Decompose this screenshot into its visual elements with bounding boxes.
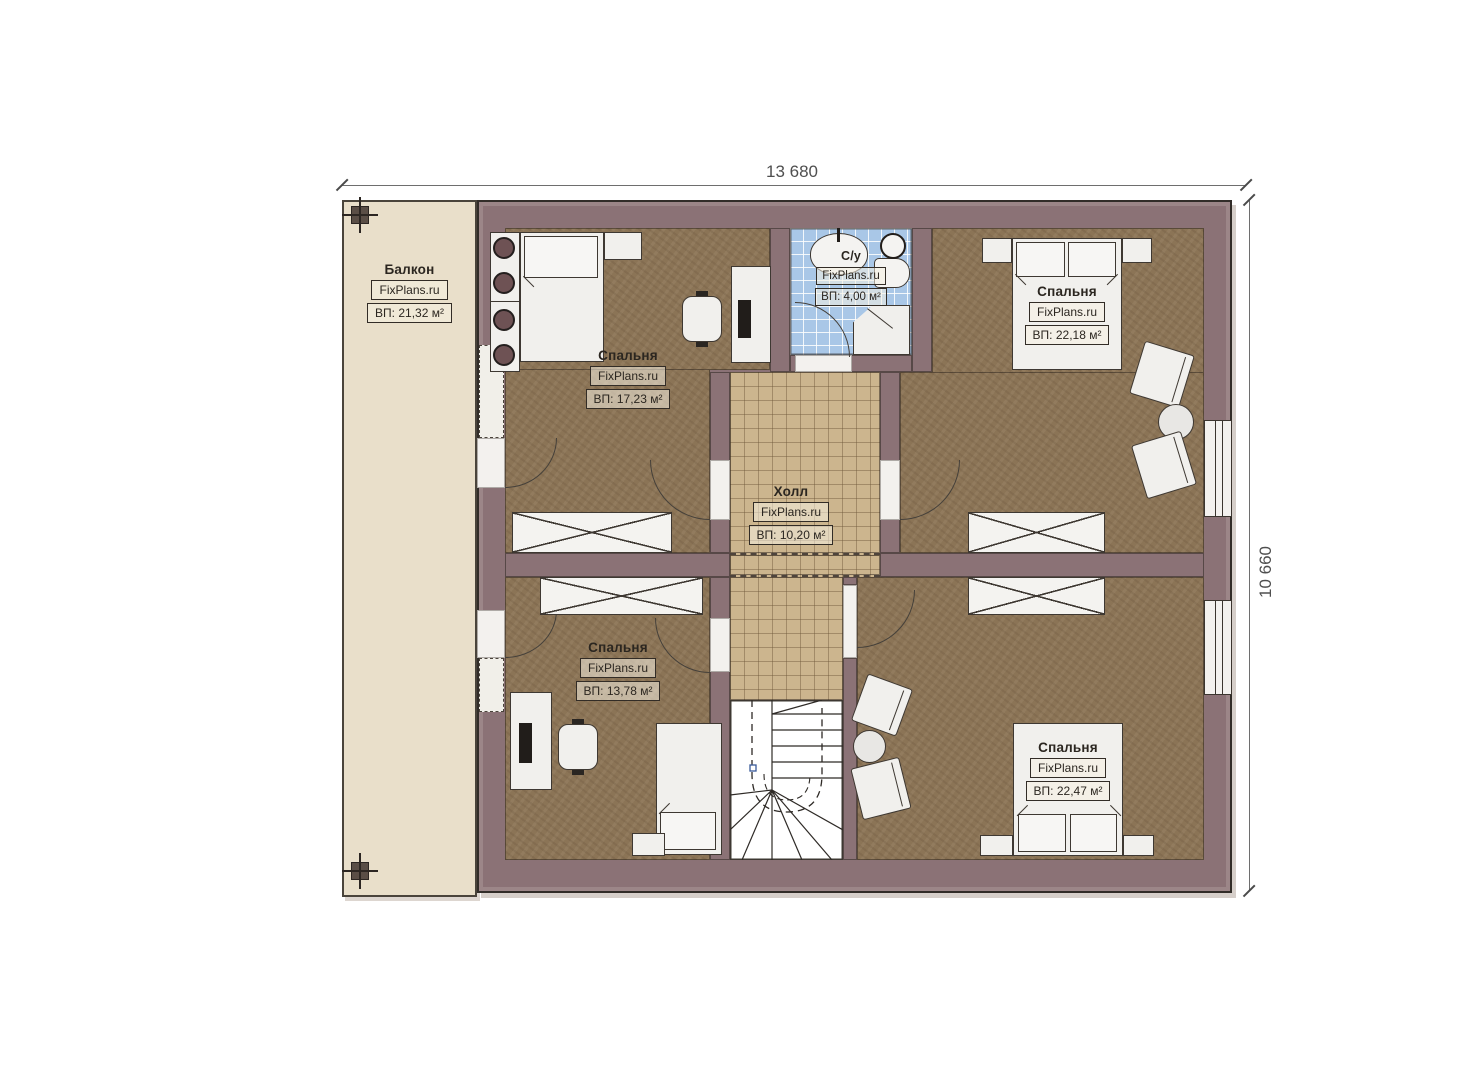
brand-box: FixPlans.ru <box>1030 758 1106 778</box>
area-box: ВП: 22,18 м² <box>1025 325 1110 345</box>
room-label-bedroom-bottom-right: Спальня FixPlans.ru ВП: 22,47 м² <box>1007 740 1129 801</box>
door-opening <box>795 355 852 372</box>
room-name: Спальня <box>568 348 688 363</box>
room-label-bedroom-bottom-left: Спальня FixPlans.ru ВП: 13,78 м² <box>558 640 678 701</box>
pillow <box>1016 242 1065 277</box>
nightstand <box>604 232 642 260</box>
dimension-line-right <box>1249 200 1250 891</box>
dimension-label-width: 13 680 <box>742 162 842 182</box>
brand-box: FixPlans.ru <box>590 366 666 386</box>
pillow <box>1070 814 1117 852</box>
desk <box>510 692 552 790</box>
pillow <box>1018 814 1066 852</box>
bed <box>656 723 722 855</box>
brand-box: FixPlans.ru <box>753 502 829 522</box>
faucet-icon <box>837 228 840 242</box>
room-name: Спальня <box>1006 284 1128 299</box>
area-box: ВП: 10,20 м² <box>749 525 834 545</box>
wall <box>770 228 790 372</box>
nightstand <box>1123 835 1154 856</box>
area-box: ВП: 21,32 м² <box>367 303 452 323</box>
room-name: Балкон <box>347 262 472 277</box>
brand-box: FixPlans.ru <box>580 658 656 678</box>
brand-box: FixPlans.ru <box>816 267 886 285</box>
balcony-door-opening <box>477 438 505 488</box>
area-box: ВП: 13,78 м² <box>576 681 661 701</box>
nightstand <box>982 238 1012 263</box>
dimension-label-height: 10 660 <box>1256 528 1276 598</box>
window <box>1204 600 1232 695</box>
area-box: ВП: 22,47 м² <box>1026 781 1111 801</box>
room-label-hall: Холл FixPlans.ru ВП: 10,20 м² <box>742 484 840 545</box>
desk <box>731 266 771 363</box>
wall <box>912 228 932 372</box>
wall <box>843 577 857 585</box>
desk-chair <box>682 296 722 342</box>
hall-floor-open-divider <box>730 553 880 577</box>
room-name: Холл <box>742 484 840 499</box>
nightstand <box>980 835 1013 856</box>
pillow <box>524 236 598 278</box>
room-name: Спальня <box>1007 740 1129 755</box>
door-opening <box>843 585 857 658</box>
monitor <box>738 300 751 338</box>
room-label-bathroom: С/у FixPlans.ru ВП: 4,00 м² <box>812 249 890 306</box>
door-opening <box>710 460 730 520</box>
pillow <box>1068 242 1116 277</box>
brand-box: FixPlans.ru <box>1029 302 1105 322</box>
area-box: ВП: 17,23 м² <box>586 389 671 409</box>
room-name: Спальня <box>558 640 678 655</box>
room-label-bedroom-top-right: Спальня FixPlans.ru ВП: 22,18 м² <box>1006 284 1128 345</box>
wardrobe <box>968 512 1105 553</box>
wardrobe <box>540 577 703 615</box>
balcony-door-opening <box>477 610 505 658</box>
wall <box>505 553 730 577</box>
shelf-unit <box>490 232 520 372</box>
bed <box>520 232 604 362</box>
room-name: С/у <box>812 249 890 264</box>
wardrobe <box>512 512 672 553</box>
column-marker <box>351 862 369 880</box>
hall-floor-landing <box>730 577 843 700</box>
side-table <box>853 730 886 763</box>
area-box: ВП: 4,00 м² <box>815 288 887 306</box>
wardrobe <box>968 577 1105 615</box>
nightstand <box>632 833 665 856</box>
brand-box: FixPlans.ru <box>371 280 447 300</box>
door-opening <box>710 618 730 672</box>
column-marker <box>351 206 369 224</box>
staircase <box>730 700 843 860</box>
door-opening <box>880 460 900 520</box>
wall <box>843 658 857 860</box>
monitor <box>519 723 532 763</box>
wall <box>880 553 1204 577</box>
dimension-line-top <box>342 185 1246 186</box>
nightstand <box>1122 238 1152 263</box>
room-label-balcony: Балкон FixPlans.ru ВП: 21,32 м² <box>347 262 472 323</box>
window <box>1204 420 1232 517</box>
pillow <box>660 812 716 850</box>
room-label-bedroom-top-left: Спальня FixPlans.ru ВП: 17,23 м² <box>568 348 688 409</box>
desk-chair <box>558 724 598 770</box>
balcony-window <box>479 658 504 712</box>
